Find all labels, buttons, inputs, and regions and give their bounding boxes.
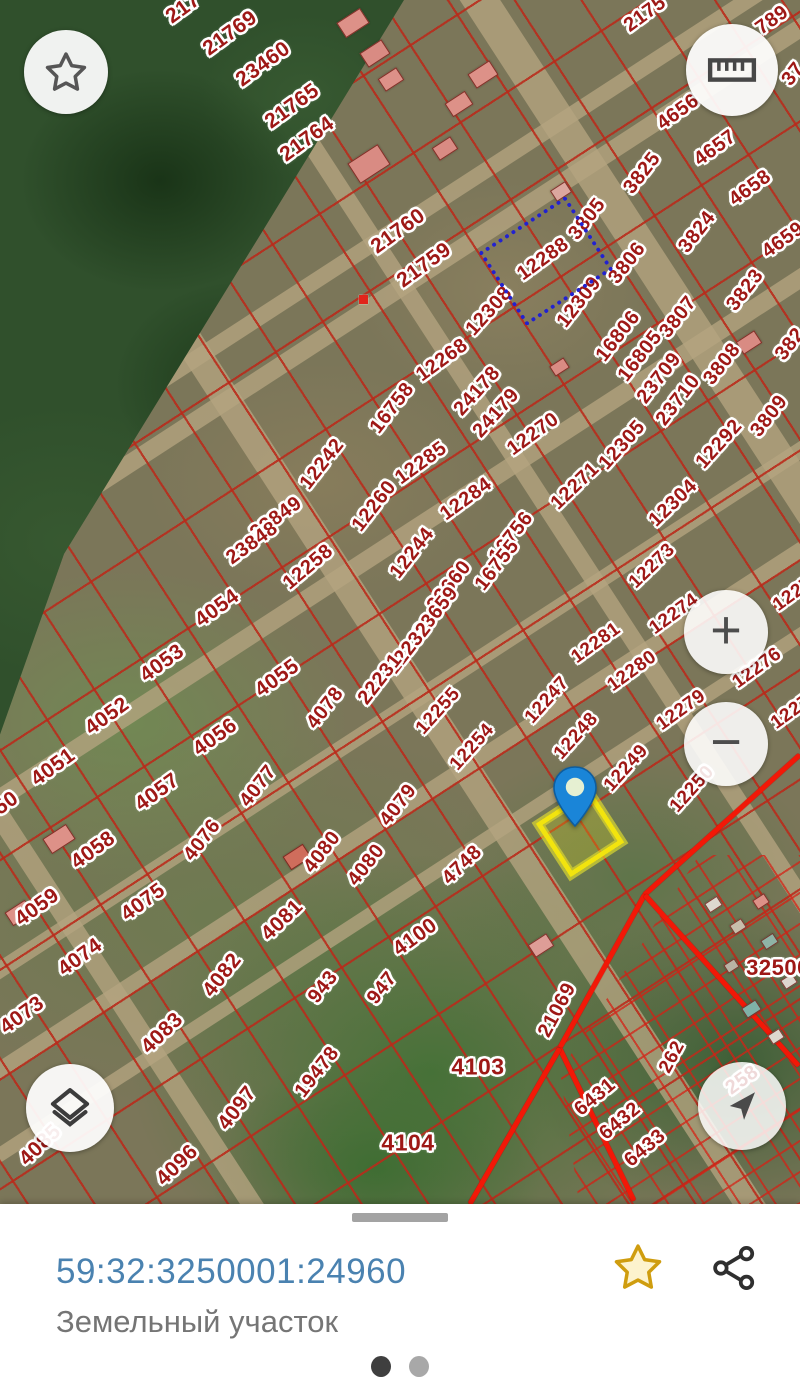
page-indicator [0, 1356, 800, 1377]
page-dot[interactable] [409, 1356, 429, 1377]
zoom-out-button[interactable]: − [684, 702, 768, 786]
red-point-marker [359, 295, 368, 304]
map-pin-icon [551, 765, 599, 829]
drag-handle[interactable] [352, 1213, 448, 1222]
layers-icon [44, 1082, 96, 1134]
compass-arrow-icon [716, 1080, 768, 1132]
star-favorite-icon [610, 1240, 666, 1296]
locate-button[interactable] [698, 1062, 786, 1150]
minus-icon: − [710, 715, 742, 769]
parcel-type-label: Земельный участок [56, 1304, 338, 1340]
cadastral-map-app: 2172176923460217652176421760217591230812… [0, 0, 800, 1394]
favorite-star-button[interactable] [610, 1240, 666, 1296]
ruler-icon [704, 42, 760, 98]
map-canvas[interactable]: 2172176923460217652176421760217591230812… [0, 0, 800, 1204]
zoom-in-button[interactable]: + [684, 590, 768, 674]
parcel-label[interactable]: 4104 [381, 1132, 434, 1155]
layers-button[interactable] [26, 1064, 114, 1152]
parcel-label[interactable]: 32500 [746, 957, 800, 979]
plus-icon: + [710, 603, 742, 657]
page-dot[interactable] [371, 1356, 391, 1377]
share-icon [709, 1243, 759, 1293]
cadastral-number-link[interactable]: 59:32:3250001:24960 [56, 1252, 406, 1292]
measure-button[interactable] [686, 24, 778, 116]
parcel-label[interactable]: 4103 [451, 1056, 504, 1079]
share-button[interactable] [706, 1240, 762, 1296]
star-outline-icon [41, 47, 91, 97]
bottom-sheet[interactable]: 59:32:3250001:24960 Земельный участок [0, 1204, 800, 1394]
favorites-button[interactable] [24, 30, 108, 114]
